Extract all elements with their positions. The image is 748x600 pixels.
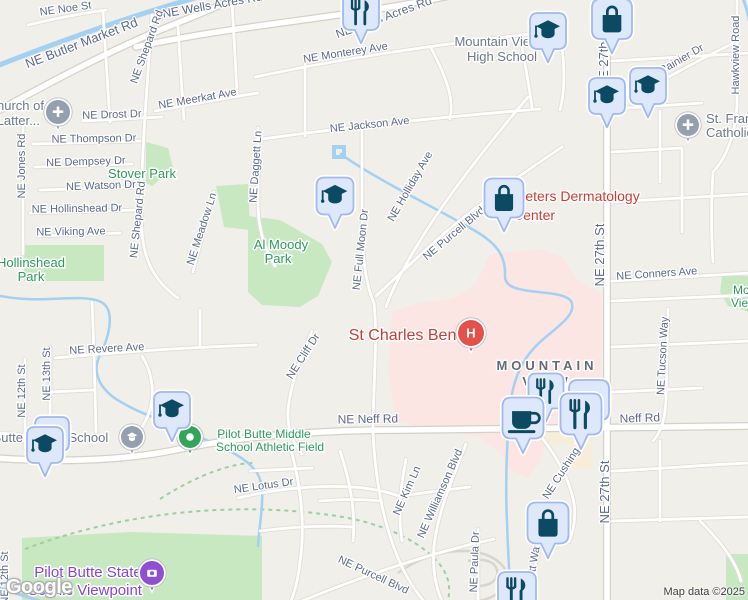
street-label: NE Drost Dr <box>82 108 142 122</box>
map-svg[interactable]: NE Noe StNE Butler Market RdNE Wells Acr… <box>0 0 748 600</box>
map-canvas[interactable]: NE Noe StNE Butler Market RdNE Wells Acr… <box>0 0 748 600</box>
pilot-butte-athletic-field-label[interactable]: Pilot Butte Middle <box>217 427 311 441</box>
st-francis-catholic-label[interactable]: Catholic... <box>706 125 748 140</box>
hollinshead-park-label[interactable]: Park <box>18 269 45 284</box>
svg-text:H: H <box>466 326 475 341</box>
google-logo[interactable]: Google <box>6 576 72 599</box>
street-label: Neff Rd <box>619 410 660 425</box>
pilot-butte-athletic-field-label[interactable]: School Athletic Field <box>216 440 324 454</box>
street-label: NE Viking Ave <box>36 225 106 238</box>
street-label: NE Thompson Dr <box>51 132 136 145</box>
mountain-view-high-school-label[interactable]: High School <box>467 49 537 64</box>
mountain-view-park-label[interactable]: Mountain <box>733 283 748 297</box>
stover-park-label[interactable]: Stover Park <box>108 166 176 181</box>
st-francis-catholic-label[interactable]: St. Francis <box>706 111 748 126</box>
al-moody-park-label[interactable]: Al Moody <box>254 237 309 252</box>
hollinshead-park-label[interactable]: Hollinshead <box>0 255 65 270</box>
street-label: NE Hollinshead Dr <box>32 202 123 216</box>
street-label: Hawkview Road <box>730 16 742 95</box>
st-charles-bend-label[interactable]: St Charles Bend <box>349 327 466 344</box>
street-label: NE 13th St <box>41 347 53 400</box>
church-of-latter-day-saints-label[interactable]: Church of <box>0 98 44 113</box>
mountain-view-neighborhood-label[interactable]: MOUNTAIN <box>496 358 597 373</box>
road <box>712 172 714 262</box>
street-label: NE 12th St <box>16 364 28 417</box>
street-label: NE Paula Dr <box>468 531 482 593</box>
church-of-latter-day-saints-label[interactable]: Latter... <box>0 113 40 128</box>
mountain-view-high-school-label[interactable]: Mountain View <box>454 34 540 49</box>
street-label: NE Neff Rd <box>338 411 399 426</box>
street-label: NE Jones Rd <box>16 134 28 199</box>
road <box>50 390 94 392</box>
mountain-view-park-label[interactable]: View <box>731 296 748 310</box>
restaurant-pin[interactable] <box>498 572 536 600</box>
al-moody-park-label[interactable]: Park <box>265 251 292 266</box>
peters-dermatology-center-label[interactable]: Peters Dermatology <box>516 188 640 204</box>
road <box>320 500 382 502</box>
street-label: NE 27th St <box>597 460 612 523</box>
map-attribution: Map data ©2025 <box>664 586 746 598</box>
street-label: NE 27th St <box>592 223 607 286</box>
